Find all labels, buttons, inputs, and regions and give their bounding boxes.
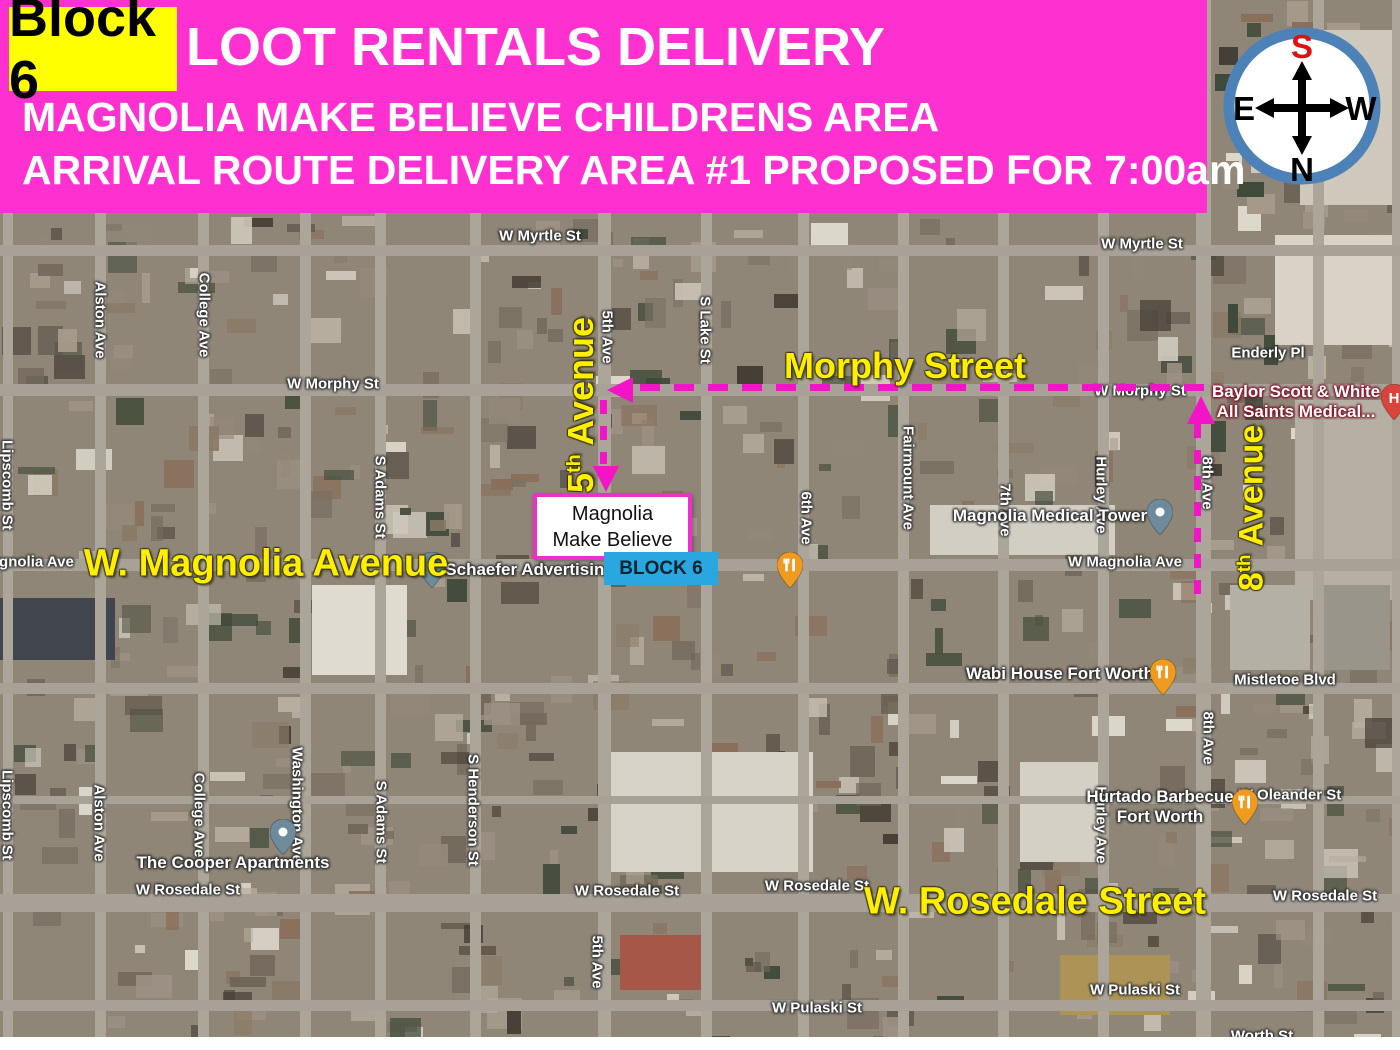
compass-right-letter: W: [1345, 90, 1377, 127]
slide-title: LOOT RENTALS DELIVERY: [186, 16, 885, 78]
compass-rose: S N E W: [1220, 24, 1384, 188]
bottom-margin: [0, 1037, 1400, 1050]
slide-subtitle-2: ARRIVAL ROUTE DELIVERY AREA #1 PROPOSED …: [22, 147, 1245, 194]
compass-bottom-letter: N: [1290, 151, 1314, 188]
destination-callout: Magnolia Make Believe: [533, 493, 692, 560]
block-number-highlight: Block 6: [9, 7, 177, 91]
destination-line1: Magnolia: [572, 501, 653, 527]
delivery-route-slide: W Myrtle StW Myrtle StAlston AveCollege …: [0, 0, 1400, 1050]
route-street-annotation: 8th Avenue: [1233, 425, 1272, 591]
slide-subtitle-1: MAGNOLIA MAKE BELIEVE CHILDRENS AREA: [22, 94, 939, 141]
compass-left-letter: E: [1233, 90, 1255, 127]
route-street-annotation: W. Rosedale Street: [864, 881, 1206, 924]
block-6-marker-label: BLOCK 6: [619, 558, 702, 580]
route-street-annotation: Morphy Street: [784, 345, 1026, 387]
title-banner: Block 6 LOOT RENTALS DELIVERY MAGNOLIA M…: [0, 0, 1207, 213]
route-street-annotation: W. Magnolia Avenue: [84, 543, 449, 586]
block-6-marker: BLOCK 6: [604, 552, 718, 585]
destination-line2: Make Believe: [552, 527, 672, 553]
route-street-annotation: 5th Avenue: [560, 317, 602, 493]
compass-top-letter: S: [1291, 28, 1313, 65]
compass-icon: S N E W: [1220, 24, 1384, 188]
